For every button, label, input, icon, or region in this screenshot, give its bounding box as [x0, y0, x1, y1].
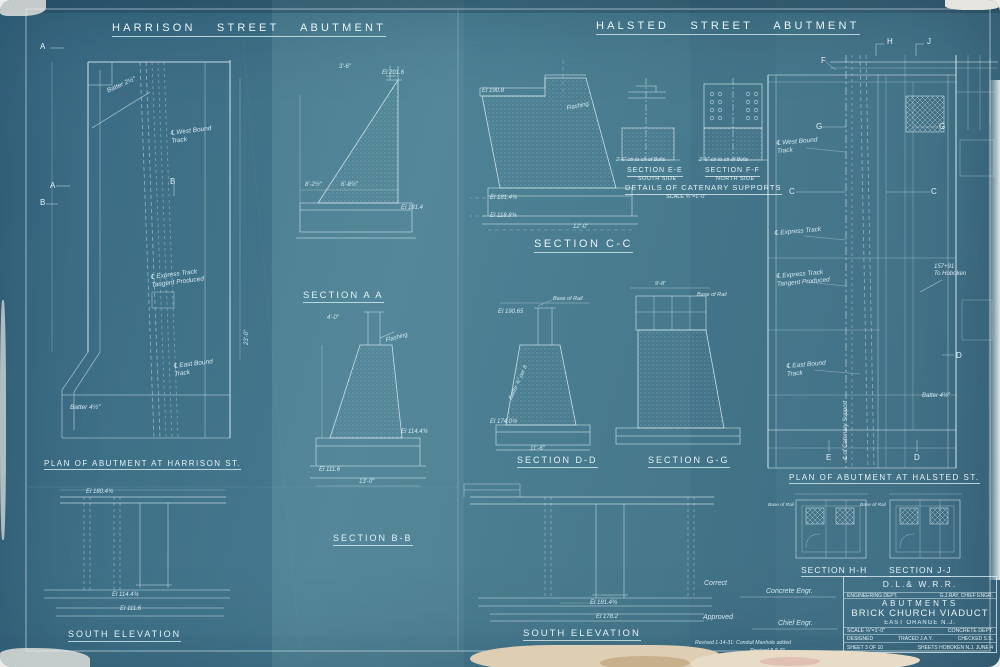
caption-plan-harrison: PLAN OF ABUTMENT AT HARRISON ST. — [44, 459, 241, 470]
elev-178: El 178.2 — [596, 614, 618, 621]
dim-13ft: 13'-0″ — [359, 479, 374, 486]
elev-111-bb: El 111.6 — [319, 467, 340, 474]
title-block: D.L.& W.R.R. ENGINEERING DEPT. G.J.RAY, … — [843, 576, 997, 653]
sign-chief-engr: Chief Engr. — [778, 620, 813, 628]
cut-marker-g: G — [939, 122, 945, 131]
cut-marker-j: J — [927, 37, 931, 46]
elev-190: El 190.8 — [482, 88, 504, 95]
caption-south-elevation-center: SOUTH ELEVATION — [523, 628, 641, 641]
title-block-scale: SCALE ⅛″=1'-0″ — [847, 628, 885, 634]
dim-8-2: 8'-2½″ — [305, 182, 322, 189]
catenary-details-drawing — [618, 78, 768, 160]
sign-approved: Approved — [703, 614, 733, 622]
title-harrison: HARRISON STREET ABUTMENT — [112, 22, 386, 37]
title-block-checked: CHECKED S.S. — [958, 636, 993, 642]
title-block-dept2: CONCRETE DEPT. — [948, 628, 993, 634]
elev-111: El 111.6 — [120, 606, 141, 613]
title-block-sheet: SHEET 3 OF 10 — [847, 645, 883, 651]
elev-174: El 174.0¾ — [490, 419, 517, 426]
note-base-of-rail-hh: Base of Rail — [768, 503, 794, 509]
title-block-traced: TRACED J.A.Y. — [898, 636, 933, 642]
cut-marker-c: C — [789, 187, 795, 196]
caption-plan-halsted: PLAN OF ABUTMENT AT HALSTED ST. — [789, 473, 980, 484]
sign-concrete-engr: Concrete Engr. — [766, 588, 813, 596]
cut-marker-d: D — [914, 453, 920, 462]
halsted-plan-drawing — [768, 44, 998, 468]
cut-marker-a: A — [40, 42, 45, 51]
section-aa-drawing — [296, 66, 416, 238]
cut-marker-c: C — [931, 187, 937, 196]
caption-section-dd: SECTION D-D — [517, 455, 598, 468]
dim-4-0: 4'-0″ — [327, 315, 339, 322]
elev-181-cc: El 181.4¾ — [490, 195, 517, 202]
cut-marker-e: E — [826, 453, 831, 462]
caption-south-elevation-left: SOUTH ELEVATION — [68, 629, 181, 642]
dim-3-6: 3'-6″ — [339, 64, 351, 71]
note-base-of-rail-dd: Base of Rail — [553, 296, 583, 302]
sign-correct: Correct — [704, 580, 727, 588]
cut-marker-a: A — [50, 181, 55, 190]
dim-23ft: 23'-0″ — [244, 330, 251, 345]
harrison-plan-drawing — [46, 48, 240, 438]
elev-181-sec: El 181.4¾ — [590, 600, 617, 607]
note-catenary-centerline: ℄ of Catenary Support — [843, 401, 850, 460]
dim-9-8: 9'-8″ — [655, 281, 666, 287]
caption-section-ee-side: SOUTH SIDE — [638, 176, 677, 182]
caption-section-gg: SECTION G-G — [648, 455, 730, 468]
title-block-designed: DESIGNED — [847, 636, 873, 642]
cut-marker-h: H — [887, 37, 893, 46]
note-base-of-rail-jj: Base of Rail — [860, 503, 886, 509]
elev-114: El 114.4¾ — [112, 592, 139, 599]
caption-section-cc: SECTION C-C — [534, 238, 633, 253]
south-elevation-center-drawing — [464, 484, 714, 621]
elev-118-cc: El 118.8¾ — [490, 213, 517, 220]
caption-section-bb: SECTION B-B — [333, 533, 413, 546]
dim-11-6: 11'-6″ — [530, 446, 545, 453]
title-block-subject: ABUTMENTS — [844, 598, 996, 608]
revision-note-1: Revised 1-14-31: Conduit Manhole added — [695, 640, 791, 646]
dim-6-8: 6'-8½″ — [341, 182, 358, 189]
elev-181: El 181.4 — [401, 205, 423, 212]
title-block-location: EAST ORANGE N.J. — [844, 620, 996, 627]
title-block-project: BRICK CHURCH VIADUCT — [844, 608, 996, 620]
elev-201: El 201.6 — [382, 70, 404, 77]
note-bolts-ff: 2'-6″ ctr to ctr of Bolts — [699, 157, 748, 163]
elev-114-bb: El 114.4¾ — [401, 429, 428, 436]
note-batter-hal: Batter 4½″ — [922, 393, 950, 400]
elev-190-65: El 190.65 — [498, 309, 523, 316]
cut-marker-b: B — [170, 177, 175, 186]
title-block-railroad: D.L.& W.R.R. — [844, 577, 996, 592]
note-bolts-ee: 2'-6″ ctr to ctr of Bolts — [616, 157, 665, 163]
dim-12ft: 12'-0″ — [573, 224, 588, 231]
note-station-hoboken: 157+91 To Hoboken — [934, 264, 966, 278]
caption-section-aa: SECTION A A — [303, 290, 384, 303]
note-base-of-rail-gg: Base of Rail — [697, 292, 727, 298]
cut-marker-f: F — [821, 56, 826, 65]
section-gg-drawing — [616, 288, 740, 444]
cut-marker-g: G — [816, 122, 822, 131]
revision-note-2: Revised 8-8-31 — [750, 648, 785, 654]
cut-marker-d: D — [956, 351, 962, 360]
blueprint-scan: HARRISON STREET ABUTMENT HALSTED STREET … — [0, 0, 1000, 667]
caption-section-ff-side: NORTH SIDE — [716, 176, 755, 182]
title-halsted: HALSTED STREET ABUTMENT — [596, 20, 860, 35]
blueprint-sheet: HARRISON STREET ABUTMENT HALSTED STREET … — [0, 0, 1000, 667]
caption-catenary-scale: SCALE ¾″=1'-0″ — [666, 194, 706, 200]
note-batter-bottom: Batter 4½″ — [70, 404, 101, 412]
elev-180: El 180.4¾ — [86, 489, 113, 496]
section-cc-drawing — [470, 60, 638, 230]
title-block-drawn: SHEETS HOBOKEN N.J. JUNE 4 — [918, 645, 993, 651]
cut-marker-b: B — [40, 198, 45, 207]
section-dd-drawing — [496, 300, 590, 450]
